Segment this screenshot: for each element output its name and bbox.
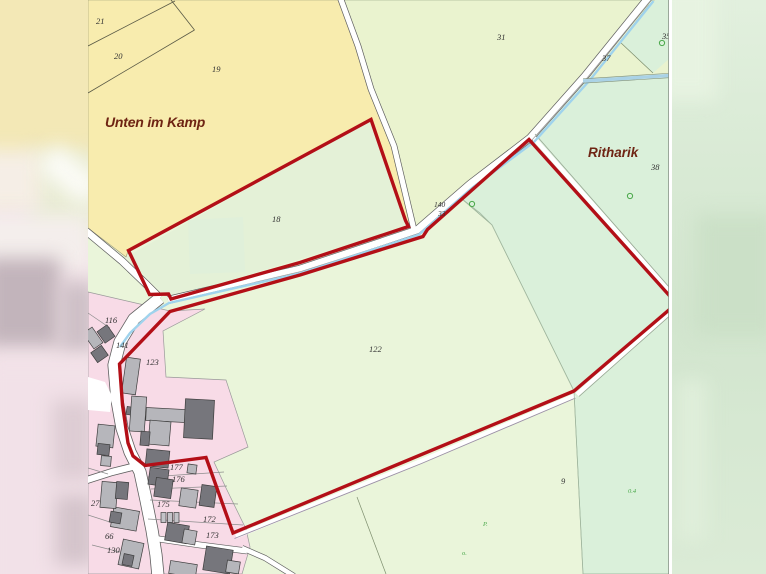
svg-text:38: 38: [650, 162, 660, 172]
svg-text:122: 122: [369, 344, 383, 354]
svg-text:37: 37: [601, 53, 611, 63]
svg-text:176: 176: [172, 474, 186, 484]
svg-text:172: 172: [203, 514, 217, 524]
svg-text:116: 116: [105, 315, 118, 325]
svg-text:177: 177: [170, 462, 184, 472]
svg-text:Unten im Kamp: Unten im Kamp: [105, 114, 206, 130]
svg-text:173: 173: [206, 530, 219, 540]
svg-text:o.: o.: [462, 550, 467, 557]
svg-text:130: 130: [107, 545, 121, 555]
svg-text:141: 141: [116, 340, 129, 350]
svg-text:33: 33: [437, 209, 446, 218]
svg-text:66: 66: [105, 531, 114, 541]
svg-text:31: 31: [496, 32, 506, 42]
svg-text:19: 19: [212, 64, 221, 74]
svg-text:21: 21: [96, 16, 105, 26]
svg-text:0.4: 0.4: [628, 488, 637, 495]
svg-text:175: 175: [157, 499, 170, 509]
svg-text:P.: P.: [482, 521, 488, 528]
svg-text:18: 18: [272, 214, 281, 224]
svg-text:123: 123: [146, 357, 159, 367]
svg-text:140: 140: [434, 200, 446, 209]
svg-text:27: 27: [91, 498, 100, 508]
svg-text:20: 20: [114, 51, 123, 61]
svg-text:Ritharik: Ritharik: [588, 145, 640, 160]
